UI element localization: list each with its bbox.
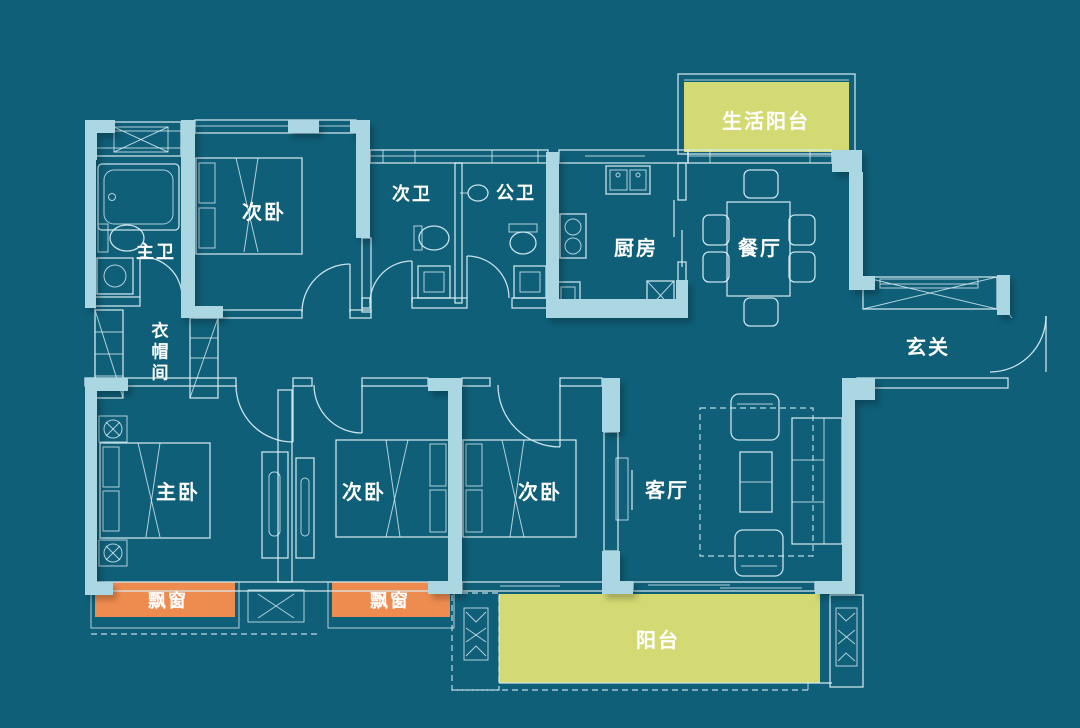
nightstand-2: [99, 540, 127, 566]
room-label-bay-window-1: 飘窗: [148, 590, 188, 611]
room-label-bedroom-a: 次卧: [242, 200, 286, 224]
door-bath-b: [370, 261, 412, 303]
room-label-balcony: 阳台: [636, 628, 680, 652]
door-bedroom-c: [498, 385, 560, 447]
door-arcs: [140, 256, 560, 447]
living-room-set: [700, 394, 842, 576]
furniture-layer: [95, 158, 842, 576]
door-master-bath: [140, 257, 182, 297]
flue-column: [830, 595, 863, 687]
room-label-cloakroom-3: 间: [152, 363, 169, 383]
room-label-bay-window-2: 飘窗: [370, 590, 410, 611]
basin-bath-public: [460, 185, 488, 201]
wardrobe-master: [262, 452, 288, 558]
floor-plan-svg: 主卫 次卧 衣 帽 间 次卫 公卫 厨房 餐厅 生活阳台 玄关 主卧 次卧 次卧…: [0, 0, 1080, 728]
ac-platform-small: [248, 590, 304, 622]
room-label-master-bath: 主卫: [136, 241, 176, 262]
room-label-cloakroom-1: 衣: [152, 321, 169, 341]
entrance-door: [990, 313, 1046, 372]
foyer-cabinet: [863, 277, 997, 309]
bathtub: [98, 164, 179, 230]
ac-platform-balcony: [452, 593, 499, 690]
room-label-cloakroom-2: 帽: [152, 342, 169, 362]
room-label-kitchen: 厨房: [614, 236, 658, 260]
nightstand-1: [99, 416, 127, 442]
toilet-bath-b: [414, 226, 449, 250]
room-label-bath-b: 次卫: [392, 183, 432, 204]
door-master-bedroom: [236, 385, 293, 442]
room-label-foyer: 玄关: [906, 335, 950, 359]
room-label-master-bedroom: 主卧: [156, 480, 200, 504]
wardrobe-bedroom-b: [296, 458, 314, 558]
kitchen-stove: [560, 214, 586, 258]
door-bath-public: [467, 256, 509, 298]
door-bedroom-a: [302, 264, 350, 312]
toilet-bath-public: [509, 224, 537, 254]
room-label-bedroom-c: 次卧: [518, 480, 562, 504]
door-bedroom-b: [314, 385, 362, 433]
room-label-living: 客厅: [644, 478, 689, 502]
room-label-service-balcony: 生活阳台: [722, 109, 810, 133]
vanity-bath-public: [514, 266, 546, 298]
vanity-bath-b: [418, 266, 450, 298]
structural-walls: [85, 120, 1010, 595]
room-label-dining: 餐厅: [738, 236, 782, 260]
room-labels: 主卫 次卧 衣 帽 间 次卫 公卫 厨房 餐厅 生活阳台 玄关 主卧 次卧 次卧…: [136, 109, 950, 652]
room-label-bedroom-b: 次卧: [342, 480, 386, 504]
floor-plan-page: 主卫 次卧 衣 帽 间 次卫 公卫 厨房 餐厅 生活阳台 玄关 主卧 次卧 次卧…: [0, 0, 1080, 728]
sink-master: [97, 258, 133, 294]
kitchen-sink: [606, 166, 650, 194]
room-label-bath-public: 公卫: [496, 183, 536, 203]
